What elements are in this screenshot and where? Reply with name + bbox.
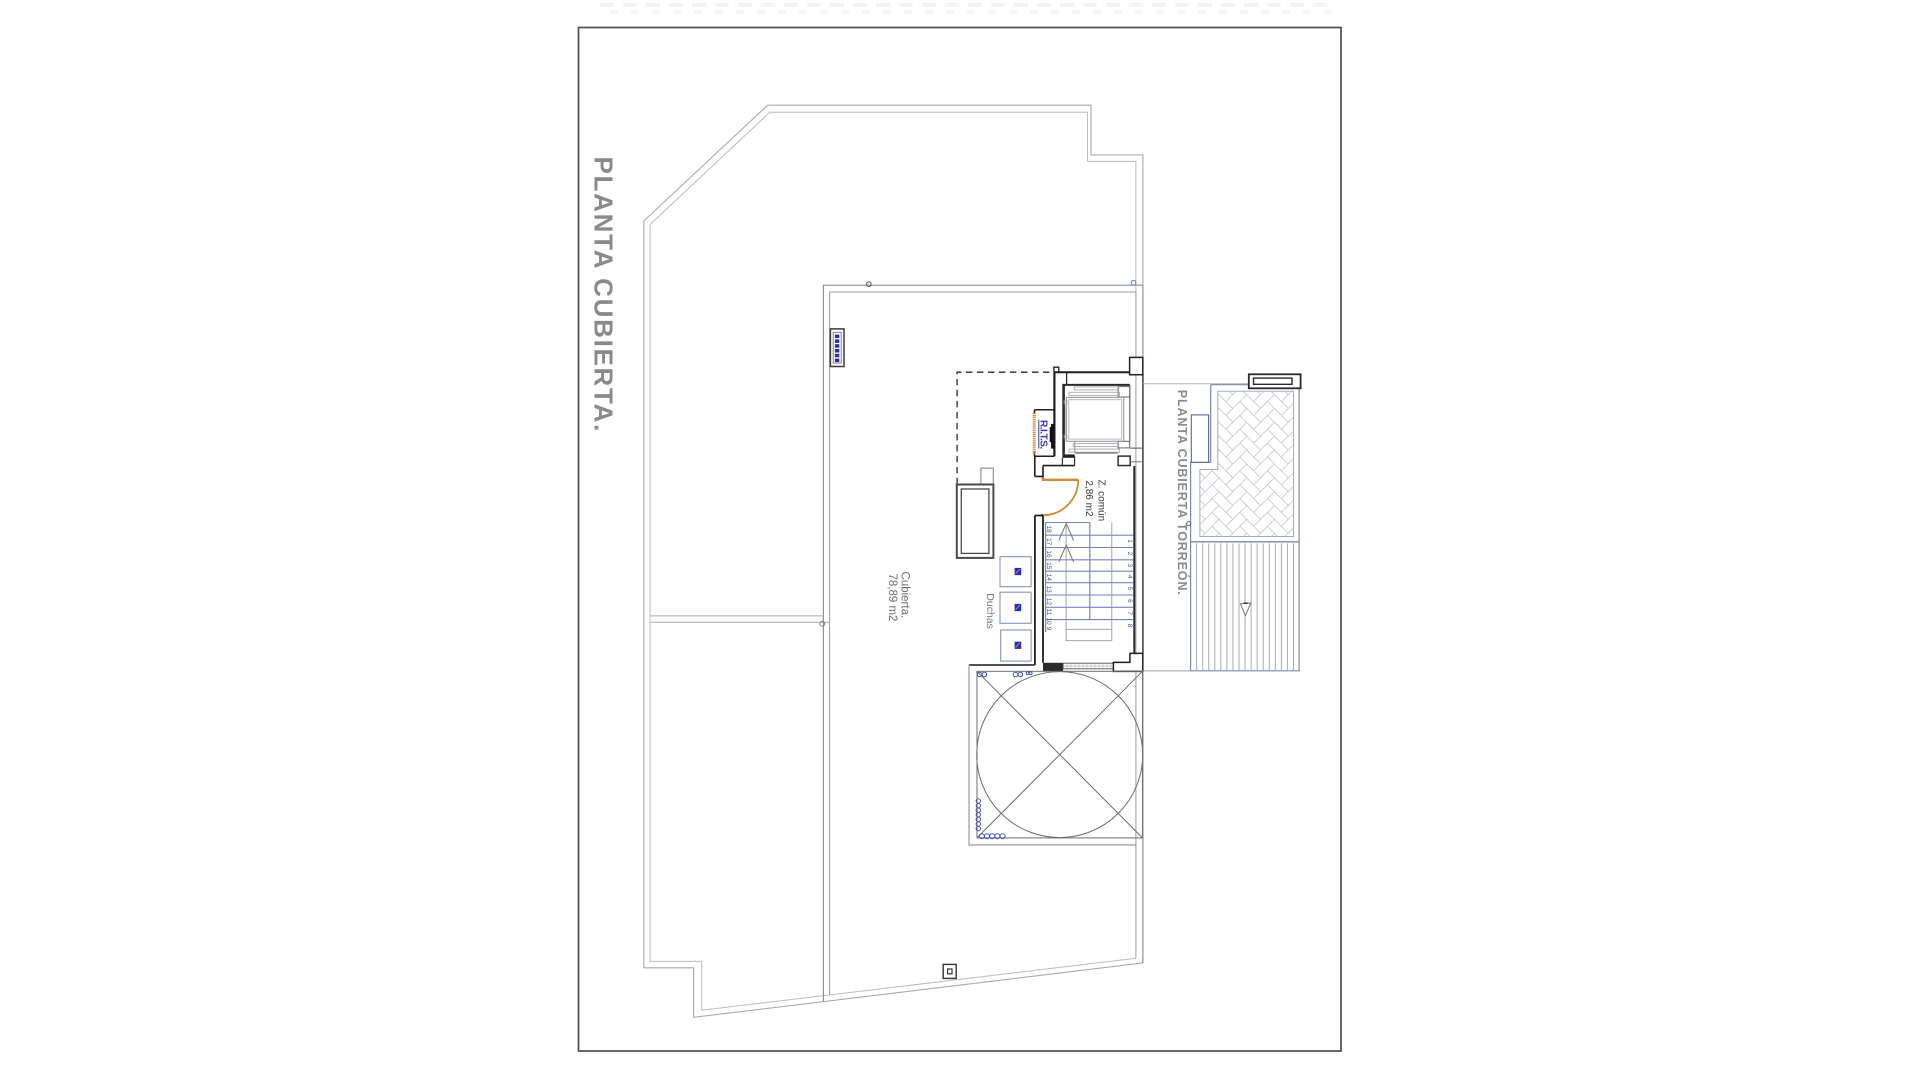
svg-text:PLANTA CUBIERTA.: PLANTA CUBIERTA. [589,157,619,434]
svg-text:6: 6 [1126,599,1133,603]
svg-text:3: 3 [1126,564,1133,568]
svg-text:PLANTA CUBIERTA TORREÓN.: PLANTA CUBIERTA TORREÓN. [1175,390,1190,596]
svg-text:R.I.T.S.: R.I.T.S. [1037,420,1048,449]
svg-text:10: 10 [1045,618,1052,626]
svg-text:16: 16 [1045,550,1052,558]
svg-text:2,86 m2: 2,86 m2 [1083,480,1094,517]
svg-text:14: 14 [1045,574,1052,582]
svg-text:18: 18 [1045,526,1052,534]
svg-text:2: 2 [1126,552,1133,556]
svg-text:17: 17 [1045,538,1052,546]
svg-text:11: 11 [1045,609,1052,616]
svg-text:8: 8 [1126,624,1133,628]
svg-text:Duchas: Duchas [984,593,996,629]
svg-text:78,89 m2: 78,89 m2 [886,574,898,622]
svg-text:1: 1 [1126,539,1133,543]
svg-text:9: 9 [1045,627,1052,631]
svg-text:Z. común: Z. común [1096,480,1107,522]
svg-text:5: 5 [1126,587,1133,591]
svg-text:4: 4 [1126,575,1133,579]
svg-text:13: 13 [1045,586,1052,594]
svg-text:12: 12 [1045,598,1052,606]
svg-text:15: 15 [1045,562,1052,570]
svg-text:7: 7 [1126,611,1133,615]
svg-text:Cubierta.: Cubierta. [899,572,911,619]
